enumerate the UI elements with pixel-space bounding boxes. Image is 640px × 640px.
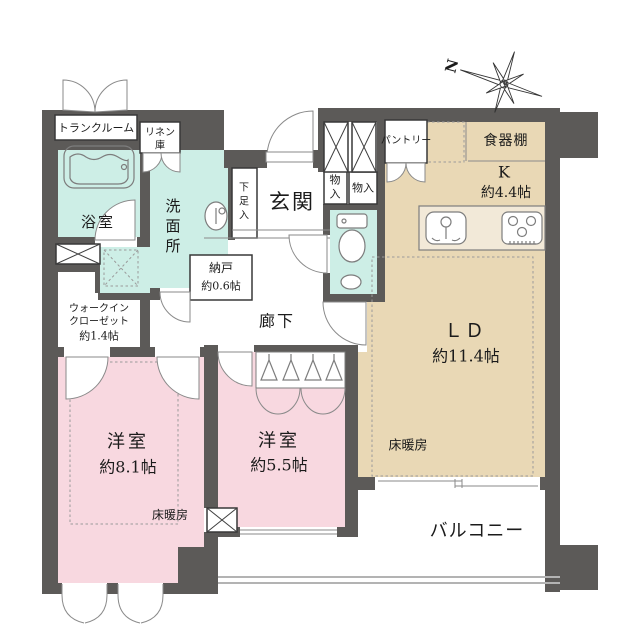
wall: [323, 294, 385, 302]
bedroom1-window-b: [118, 583, 163, 594]
toilet-icon: [337, 214, 367, 262]
trunk-door-right: [95, 80, 127, 112]
compass-star: [459, 51, 542, 113]
floor-plan: N トランクルーム リネン 庫 浴室 洗 面 所 下 足 入 玄関 納戸 約0.…: [0, 0, 640, 640]
wall: [204, 347, 218, 508]
label-storage1-1: 物: [330, 173, 341, 187]
label-kitchen-size: 約4.4帖: [481, 185, 531, 201]
pipe-shaft-icon: [56, 244, 100, 264]
label-kitchen: K: [498, 163, 511, 182]
label-pantry: パントリー: [381, 135, 432, 147]
label-cupboard: 食器棚: [484, 132, 529, 149]
pipe-shaft-icon: [324, 122, 348, 172]
toilet-door-arc: [289, 235, 327, 273]
wall: [318, 108, 560, 122]
label-washroom-3: 所: [165, 237, 180, 255]
label-bath: 浴室: [81, 213, 115, 231]
wall: [560, 112, 598, 158]
wall: [545, 108, 560, 592]
label-living-dining: ＬＤ: [444, 320, 486, 342]
label-shoe-2: 足: [239, 196, 249, 208]
label-floor-heating-ld: 床暖房: [388, 438, 427, 454]
label-wic-2: クローゼット: [69, 316, 129, 328]
kitchen-ld-floor: [385, 122, 545, 477]
label-washroom-1: 洗: [165, 197, 180, 215]
ld-door-arc: [323, 302, 366, 345]
railing-lines: [218, 577, 560, 583]
wall: [58, 264, 100, 272]
wic-door-opening: [64, 347, 110, 357]
wall: [345, 345, 358, 537]
compass: N: [442, 51, 543, 113]
closet-hangers: [256, 352, 345, 388]
bedroom2-door-opening: [218, 345, 254, 352]
stove-icon: [502, 212, 542, 244]
label-shoe-1: 下: [239, 183, 249, 194]
wall: [323, 204, 378, 210]
label-bedroom1-size: 約8.1帖: [99, 458, 156, 477]
north-label: N: [442, 57, 463, 75]
label-floor-heating-bedroom1: 床暖房: [152, 507, 188, 522]
label-storage2: 物入: [352, 181, 374, 195]
toilet-bowl: [339, 230, 365, 262]
bedroom1-window-a: [62, 583, 107, 594]
label-living-dining-size: 約11.4帖: [432, 347, 500, 366]
label-storeroom: 納戸: [209, 261, 233, 275]
wall: [560, 545, 598, 590]
ld-window: [375, 477, 540, 490]
floor-plan-svg: N トランクルーム リネン 庫 浴室 洗 面 所 下 足 入 玄関 納戸 約0.…: [0, 0, 640, 640]
hand-basin-icon: [341, 275, 361, 289]
entrance-door-arc: [267, 111, 313, 157]
label-wic-1: ウォークイン: [69, 303, 129, 315]
label-wic-size: 約1.4帖: [79, 329, 119, 343]
washroom-door-arc: [160, 292, 190, 322]
pipe-shaft-icon: [207, 508, 237, 532]
sink-icon: [426, 212, 466, 244]
label-bedroom1: 洋室: [107, 432, 149, 453]
label-trunk-room: トランクルーム: [58, 122, 134, 135]
kitchen-counter: [419, 206, 545, 250]
pipe-shaft-icon: [352, 122, 376, 172]
label-bedroom2-size: 約5.5帖: [250, 456, 307, 475]
label-storage1-2: 入: [330, 188, 341, 201]
label-balcony: バルコニー: [430, 521, 525, 542]
label-linen-2: 庫: [155, 139, 165, 152]
label-genkan: 玄関: [269, 190, 315, 214]
wall: [204, 532, 218, 583]
bedroom1-door-opening: [155, 347, 200, 357]
label-shoe-3: 入: [239, 211, 249, 222]
label-washroom-2: 面: [165, 217, 180, 235]
label-bedroom2: 洋室: [258, 431, 300, 452]
ld-entry-floor: [367, 302, 385, 352]
label-storeroom-size: 約0.6帖: [201, 279, 241, 293]
label-hallway: 廊下: [259, 312, 295, 331]
entrance-door-leaf: [266, 152, 313, 162]
bedroom2-window: [240, 527, 337, 537]
balcony-railing: [218, 577, 560, 583]
washbasin-icon: [205, 202, 227, 230]
trunk-door-left: [63, 80, 95, 112]
label-linen-1: リネン: [145, 127, 175, 139]
